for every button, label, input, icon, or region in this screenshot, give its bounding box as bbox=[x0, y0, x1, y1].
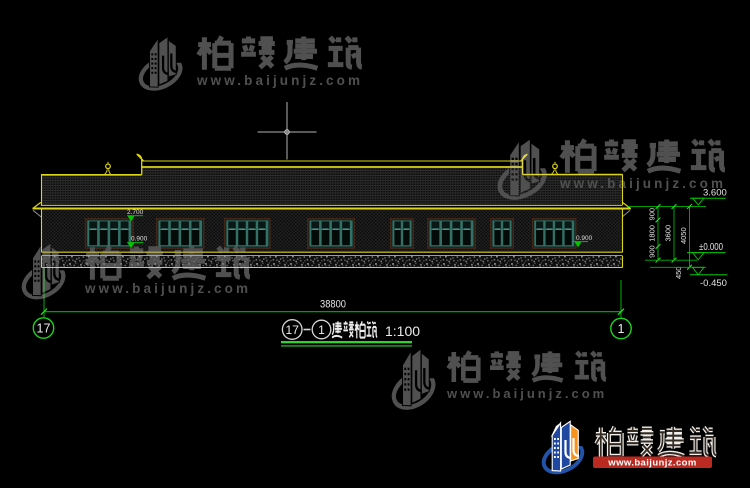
svg-text:1: 1 bbox=[318, 323, 325, 337]
svg-text:www.baijunjz.com: www.baijunjz.com bbox=[559, 176, 726, 191]
svg-text:17: 17 bbox=[286, 323, 300, 337]
svg-text:900: 900 bbox=[648, 208, 657, 221]
svg-text:3600: 3600 bbox=[664, 225, 673, 242]
svg-text:1:100: 1:100 bbox=[385, 323, 420, 339]
svg-text:900: 900 bbox=[648, 245, 657, 258]
svg-text:±0.000: ±0.000 bbox=[699, 242, 723, 253]
svg-text:www.baijunjz.com: www.baijunjz.com bbox=[84, 281, 251, 296]
svg-text:4050: 4050 bbox=[679, 227, 688, 244]
svg-text:1800: 1800 bbox=[648, 225, 657, 242]
svg-text:1: 1 bbox=[618, 322, 625, 336]
svg-text:www.baijunjz.com: www.baijunjz.com bbox=[196, 73, 363, 88]
svg-text:www.baijunjz.com: www.baijunjz.com bbox=[446, 386, 607, 401]
svg-text:38800: 38800 bbox=[320, 299, 346, 311]
svg-text:17: 17 bbox=[37, 322, 51, 336]
svg-text:2.700: 2.700 bbox=[127, 209, 144, 216]
svg-text:0.900: 0.900 bbox=[576, 235, 593, 242]
svg-text:-0.450: -0.450 bbox=[700, 278, 727, 289]
svg-text:450: 450 bbox=[674, 267, 683, 280]
svg-text:0.900: 0.900 bbox=[131, 236, 148, 243]
svg-text:www.baijunjz.com: www.baijunjz.com bbox=[607, 458, 696, 469]
